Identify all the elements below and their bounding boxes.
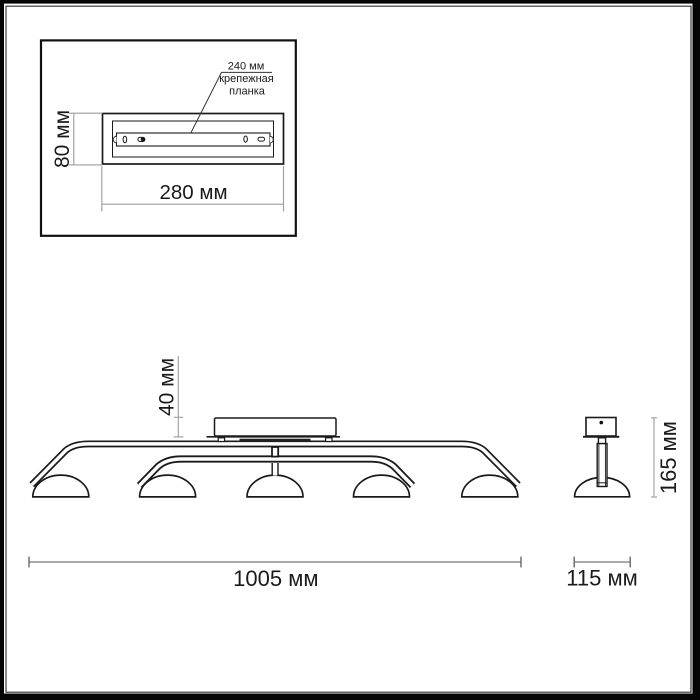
svg-text:1005 мм: 1005 мм	[233, 566, 318, 591]
svg-text:280 мм: 280 мм	[159, 181, 227, 204]
svg-text:крепежная: крепежная	[219, 73, 274, 85]
svg-text:115 мм: 115 мм	[566, 566, 637, 591]
svg-text:40 мм: 40 мм	[156, 358, 179, 416]
svg-text:240 мм: 240 мм	[228, 61, 265, 73]
svg-text:80 мм: 80 мм	[51, 110, 74, 168]
svg-text:планка: планка	[229, 86, 266, 98]
svg-text:165 мм: 165 мм	[656, 421, 681, 494]
